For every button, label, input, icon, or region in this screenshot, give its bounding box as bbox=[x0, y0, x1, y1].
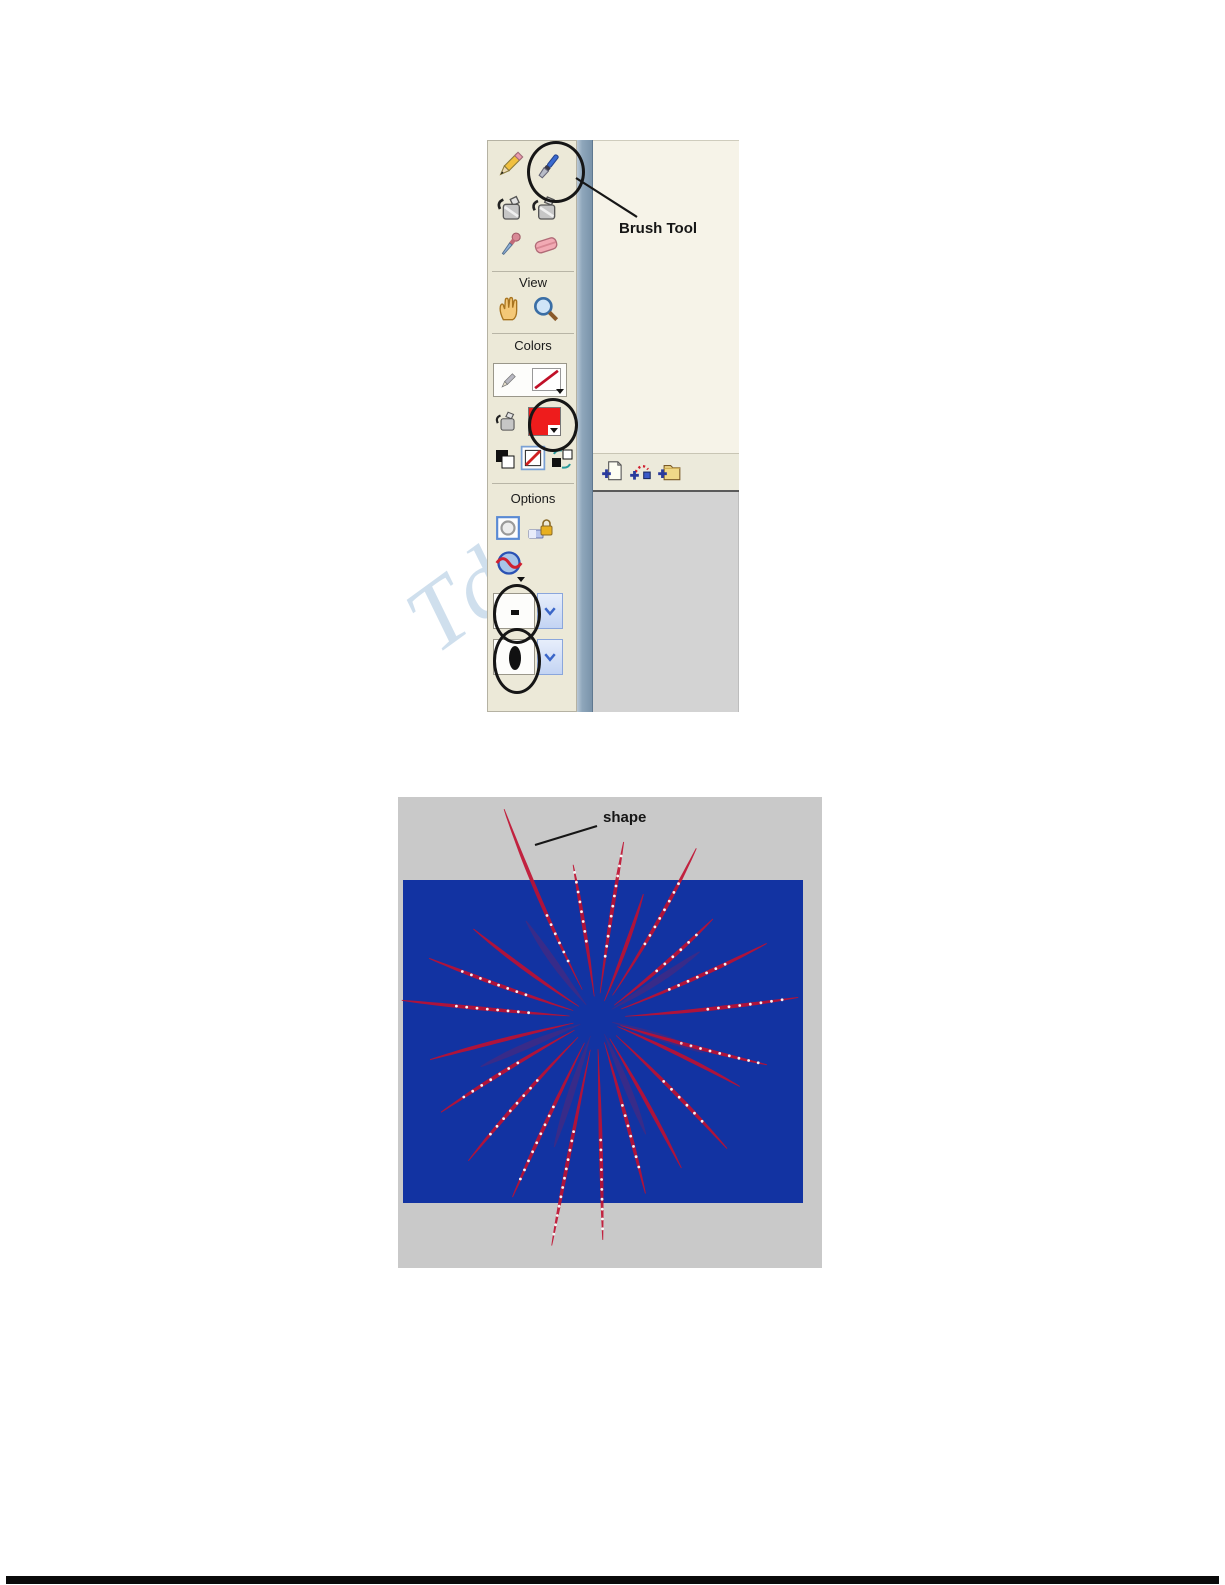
zoom-tool-icon[interactable] bbox=[530, 293, 562, 325]
section-divider bbox=[492, 271, 574, 272]
colors-section-label: Colors bbox=[488, 338, 578, 353]
firework-canvas-screenshot: shape bbox=[398, 797, 822, 1268]
page-bottom-rule bbox=[6, 1576, 1219, 1584]
stroke-dropdown-arrow-icon[interactable] bbox=[556, 389, 564, 394]
ink-bottle-tool-icon[interactable] bbox=[494, 193, 526, 225]
section-divider bbox=[492, 483, 574, 484]
timeline-layer-strip bbox=[593, 453, 739, 490]
eyedropper-tool-icon[interactable] bbox=[494, 229, 526, 261]
brush-mode-icon[interactable] bbox=[495, 549, 523, 577]
section-divider bbox=[492, 333, 574, 334]
fill-color-annotation-circle bbox=[528, 398, 578, 452]
fireworks-svg bbox=[398, 797, 822, 1268]
brush-tool-annotation-circle bbox=[527, 141, 585, 203]
brush-mode-dropdown-arrow-icon[interactable] bbox=[517, 577, 525, 582]
stroke-pencil-icon bbox=[497, 370, 519, 392]
work-area bbox=[593, 492, 739, 712]
brush-shape-annotation-circle bbox=[493, 628, 541, 694]
pencil-tool-icon[interactable] bbox=[494, 149, 526, 181]
brush-tool-annotation-label: Brush Tool bbox=[619, 220, 697, 237]
tutorial-page: { "watermark": { "text": "Td" }, "colors… bbox=[0, 0, 1225, 1585]
view-section-label: View bbox=[488, 275, 578, 290]
round-rectangle-mode-icon[interactable] bbox=[495, 515, 521, 541]
hand-tool-icon[interactable] bbox=[494, 293, 526, 325]
panel-divider[interactable] bbox=[577, 140, 593, 712]
add-motion-guide-icon[interactable] bbox=[628, 458, 654, 484]
fill-bucket-icon bbox=[494, 409, 520, 435]
lock-fill-icon[interactable] bbox=[528, 517, 556, 543]
flash-toolbar-screenshot: View Colors bbox=[487, 140, 739, 712]
default-colors-icon[interactable] bbox=[493, 447, 517, 471]
options-section-label: Options bbox=[488, 491, 578, 506]
eraser-tool-icon[interactable] bbox=[530, 229, 562, 261]
insert-layer-folder-icon[interactable] bbox=[656, 458, 682, 484]
timeline-background bbox=[593, 140, 739, 453]
stroke-color-swatch[interactable] bbox=[532, 368, 561, 391]
stroke-color-control[interactable] bbox=[493, 363, 567, 397]
insert-layer-icon[interactable] bbox=[600, 458, 626, 484]
shape-annotation-label: shape bbox=[603, 809, 646, 826]
